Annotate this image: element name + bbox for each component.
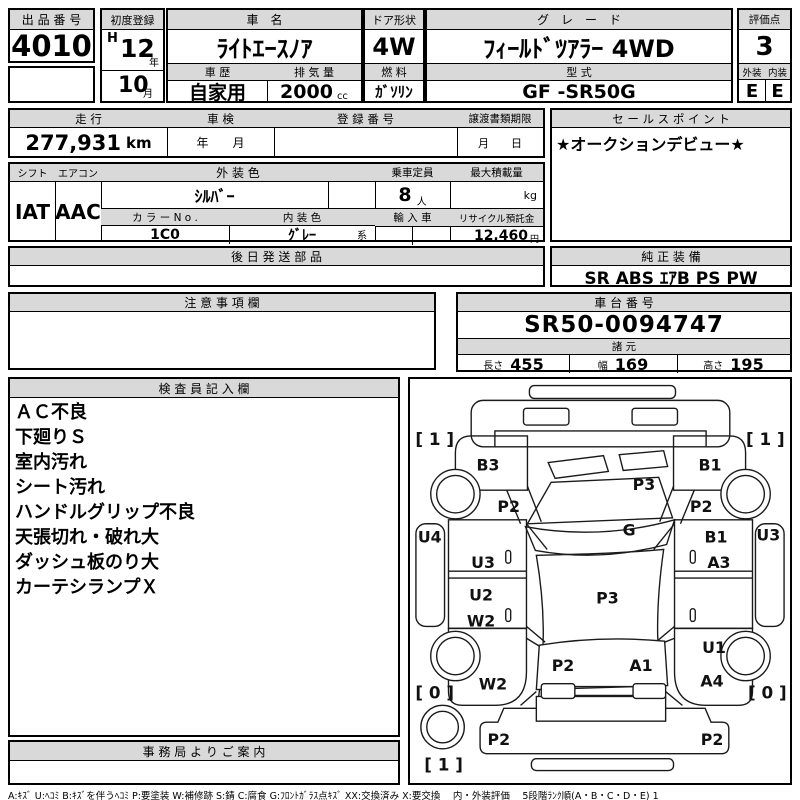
damage-label: U3 [756, 526, 780, 545]
aircon-value: AAC [55, 182, 101, 241]
transfer-label: 譲渡書類期限 [457, 110, 543, 128]
inspector-box: 検 査 員 記 入 欄 ＡＣ不良下廻りＳ室内汚れシート汚れハンドルグリップ不良天… [8, 377, 400, 737]
later-parts-box: 後 日 発 送 部 品 [8, 246, 545, 287]
damage-label: W2 [479, 675, 507, 694]
first-reg-box: 初度登録 H 12 年 10 月 [100, 8, 165, 103]
caution-box: 注 意 事 項 欄 [8, 292, 436, 370]
first-reg-label: 初度登録 [102, 10, 163, 30]
row2-box: 走 行 277,931 km 車 検 年 月 登 録 番 号 譲渡書類期限 月 … [8, 108, 545, 158]
displacement-value: 2000 cc [267, 81, 361, 102]
legend-text: A:ｷｽﾞ U:ﾍｺﾐ B:ｷｽﾞを伴うﾍｺﾐ P:要塗装 W:補修跡 S:錆 … [8, 788, 792, 800]
car-name-label: 車 名 [168, 10, 361, 30]
color-no-label: カ ラ ー N o . [101, 209, 230, 226]
first-reg-year-unit: 年 [149, 54, 159, 69]
recycle-label: リサイクル預託金 [450, 209, 543, 227]
transfer-value: 月 日 [457, 128, 543, 157]
damage-diagram-box: [ 1 ]B3B1[ 1 ]P2P2P3GU4U3U2W2B1A3U3P3U1W… [408, 377, 792, 785]
ext-color-label: 外 装 色 [101, 164, 375, 182]
inspector-note: 天張切れ・破れ大 [15, 525, 393, 550]
auction-no-value: 4010 [10, 30, 93, 62]
inspector-note: ハンドルグリップ不良 [15, 500, 393, 525]
auction-no-empty-box [8, 66, 95, 103]
inspector-note: シート汚れ [15, 475, 393, 500]
dim-length-value: 455 [510, 355, 543, 374]
first-reg-month-cell: 10 月 [102, 71, 163, 103]
exterior-value: E [739, 80, 766, 102]
interior-label: 内装 [765, 64, 790, 80]
damage-label: P2 [497, 497, 520, 516]
score-label: 評価点 [739, 10, 790, 30]
door-label: ドア形状 [365, 10, 423, 30]
inspector-notes-list: ＡＣ不良下廻りＳ室内汚れシート汚れハンドルグリップ不良天張切れ・破れ大ダッシュ板… [10, 398, 398, 602]
import-label: 輸 入 車 [375, 209, 450, 227]
damage-label: B3 [476, 455, 499, 474]
sales-point-value: ★オークションデビュー★ [552, 128, 790, 158]
int-color-value: ｸﾞﾚｰ 系 [229, 226, 375, 244]
recycle-unit: 円 [530, 232, 539, 245]
car-name-value: ﾗｲﾄｴｰｽﾉｱ [168, 30, 361, 64]
door-value: 4W [365, 30, 423, 64]
chassis-label: 車 台 番 号 [458, 294, 790, 312]
damage-label: U4 [418, 528, 442, 547]
reg-no-value [274, 128, 457, 157]
inspector-note: 室内汚れ [15, 450, 393, 475]
damage-label: U3 [471, 553, 495, 572]
import-value [375, 227, 450, 245]
recycle-number: 12,460 [474, 228, 528, 244]
damage-label: U2 [469, 586, 493, 605]
chassis-box: 車 台 番 号 SR50-0094747 諸 元 長さ 455 幅 169 高さ… [456, 292, 792, 372]
int-color-name: ｸﾞﾚｰ [288, 225, 316, 245]
fuel-label: 燃 料 [365, 64, 423, 81]
model-code-value: GF -SR50G [427, 81, 731, 102]
car-name-box: 車 名 ﾗｲﾄｴｰｽﾉｱ 車 歴 自家用 排 気 量 2000 cc [166, 8, 363, 103]
shaken-value: 年 月 [167, 128, 274, 157]
dims-label: 諸 元 [458, 339, 790, 355]
inspector-note: ＡＣ不良 [15, 400, 393, 425]
displacement-number: 2000 [280, 81, 333, 103]
damage-label: P2 [552, 656, 575, 675]
inspector-note: ダッシュ板のり大 [15, 550, 393, 575]
damage-label: P2 [690, 497, 713, 516]
mileage-value: 277,931 km [10, 128, 167, 157]
first-reg-month-unit: 月 [143, 85, 153, 100]
car-outline [416, 386, 784, 771]
damage-label: [ 1 ] [746, 429, 785, 449]
reg-no-label: 登 録 番 号 [274, 110, 457, 128]
displacement-label: 排 気 量 [267, 64, 361, 81]
damage-label: B1 [704, 528, 727, 547]
dim-height-value: 195 [730, 355, 763, 374]
max-load-value: kg [450, 182, 543, 209]
inspector-label: 検 査 員 記 入 欄 [10, 379, 398, 398]
capacity-number: 8 [398, 184, 411, 206]
damage-label: P2 [701, 730, 724, 749]
interior-value: E [765, 80, 790, 102]
sales-point-label: セ ー ル ス ポ イ ン ト [552, 110, 790, 128]
int-color-label: 内 装 色 [229, 209, 375, 226]
auction-sheet: 出 品 番 号 4010 初度登録 H 12 年 10 月 車 名 ﾗｲﾄｴｰｽ… [0, 0, 800, 800]
damage-label: [ 0 ] [415, 682, 454, 702]
auction-no-label: 出 品 番 号 [10, 10, 93, 30]
shaken-label: 車 検 [167, 110, 274, 128]
damage-label: A4 [700, 672, 723, 691]
damage-label: B1 [699, 455, 722, 474]
damage-diagram-svg: [ 1 ]B3B1[ 1 ]P2P2P3GU4U3U2W2B1A3U3P3U1W… [410, 379, 790, 783]
dim-width-value: 169 [615, 355, 648, 374]
displacement-unit: cc [337, 91, 348, 102]
capacity-value: 8 人 [375, 182, 450, 209]
grade-label: グ レ ー ド [427, 10, 731, 30]
capacity-unit: 人 [417, 193, 427, 208]
score-box: 評価点 3 外装 内装 E E [737, 8, 792, 103]
damage-label: [ 1 ] [424, 755, 463, 775]
inspector-note: 下廻りＳ [15, 425, 393, 450]
mileage-label: 走 行 [10, 110, 167, 128]
inspector-note: カーテシランプＸ [15, 575, 393, 600]
equipment-value: SR ABS ｴｱB PS PW [552, 266, 790, 286]
damage-label: A3 [707, 553, 730, 572]
max-load-label: 最大積載量 [450, 164, 543, 182]
mileage-number: 277,931 [25, 131, 121, 155]
recycle-value: 12,460 円 [450, 227, 543, 245]
dim-height-label: 高さ [703, 357, 723, 372]
fuel-value: ｶﾞｿﾘﾝ [365, 81, 423, 102]
damage-label: [ 0 ] [748, 682, 787, 702]
equipment-box: 純 正 装 備 SR ABS ｴｱB PS PW [550, 246, 792, 287]
damage-label: W2 [467, 611, 495, 630]
history-value: 自家用 [168, 81, 267, 102]
damage-label: P2 [488, 730, 511, 749]
damage-label: U1 [702, 638, 726, 657]
dim-length-label: 長さ [483, 357, 503, 372]
dim-width: 幅 169 [569, 355, 678, 373]
dim-height: 高さ 195 [677, 355, 790, 373]
ext-color-extra-cell [328, 182, 375, 208]
aircon-label: エアコン [55, 164, 101, 182]
dim-length: 長さ 455 [458, 355, 570, 373]
auction-no-box: 出 品 番 号 4010 [8, 8, 95, 63]
door-box: ドア形状 4W 燃 料 ｶﾞｿﾘﾝ [363, 8, 425, 103]
model-code-label: 型 式 [427, 64, 731, 81]
score-value: 3 [739, 30, 790, 64]
caution-label: 注 意 事 項 欄 [10, 294, 434, 312]
sales-point-box: セ ー ル ス ポ イ ン ト ★オークションデビュー★ [550, 108, 792, 242]
first-reg-year-cell: H 12 年 [102, 30, 163, 71]
office-label: 事 務 局 よ り ご 案 内 [10, 742, 398, 761]
damage-label: [ 1 ] [415, 429, 454, 449]
row3-box: シフト IAT エアコン AAC 外 装 色 ｼﾙﾊﾞｰ カ ラ ー N o .… [8, 162, 545, 242]
shift-label: シフト [10, 164, 55, 182]
damage-label: G [623, 521, 636, 540]
ext-color-value: ｼﾙﾊﾞｰ [101, 182, 329, 208]
dim-width-label: 幅 [598, 357, 608, 372]
chassis-value: SR50-0094747 [458, 312, 790, 339]
int-color-suffix: 系 [357, 227, 367, 242]
capacity-label: 乗車定員 [375, 164, 450, 182]
shift-value: IAT [10, 182, 55, 241]
exterior-label: 外装 [739, 64, 766, 80]
office-box: 事 務 局 よ り ご 案 内 [8, 740, 400, 785]
damage-label: P3 [596, 589, 619, 608]
first-reg-era: H [107, 31, 118, 46]
color-no-value: 1C0 [101, 226, 230, 244]
grade-value: ﾌｨｰﾙﾄﾞﾂｱﾗｰ 4WD [427, 30, 731, 64]
mileage-unit: km [126, 134, 152, 152]
damage-label: P3 [633, 475, 656, 494]
later-parts-label: 後 日 発 送 部 品 [10, 248, 543, 266]
damage-label: A1 [629, 656, 652, 675]
grade-box: グ レ ー ド ﾌｨｰﾙﾄﾞﾂｱﾗｰ 4WD 型 式 GF -SR50G [425, 8, 733, 103]
